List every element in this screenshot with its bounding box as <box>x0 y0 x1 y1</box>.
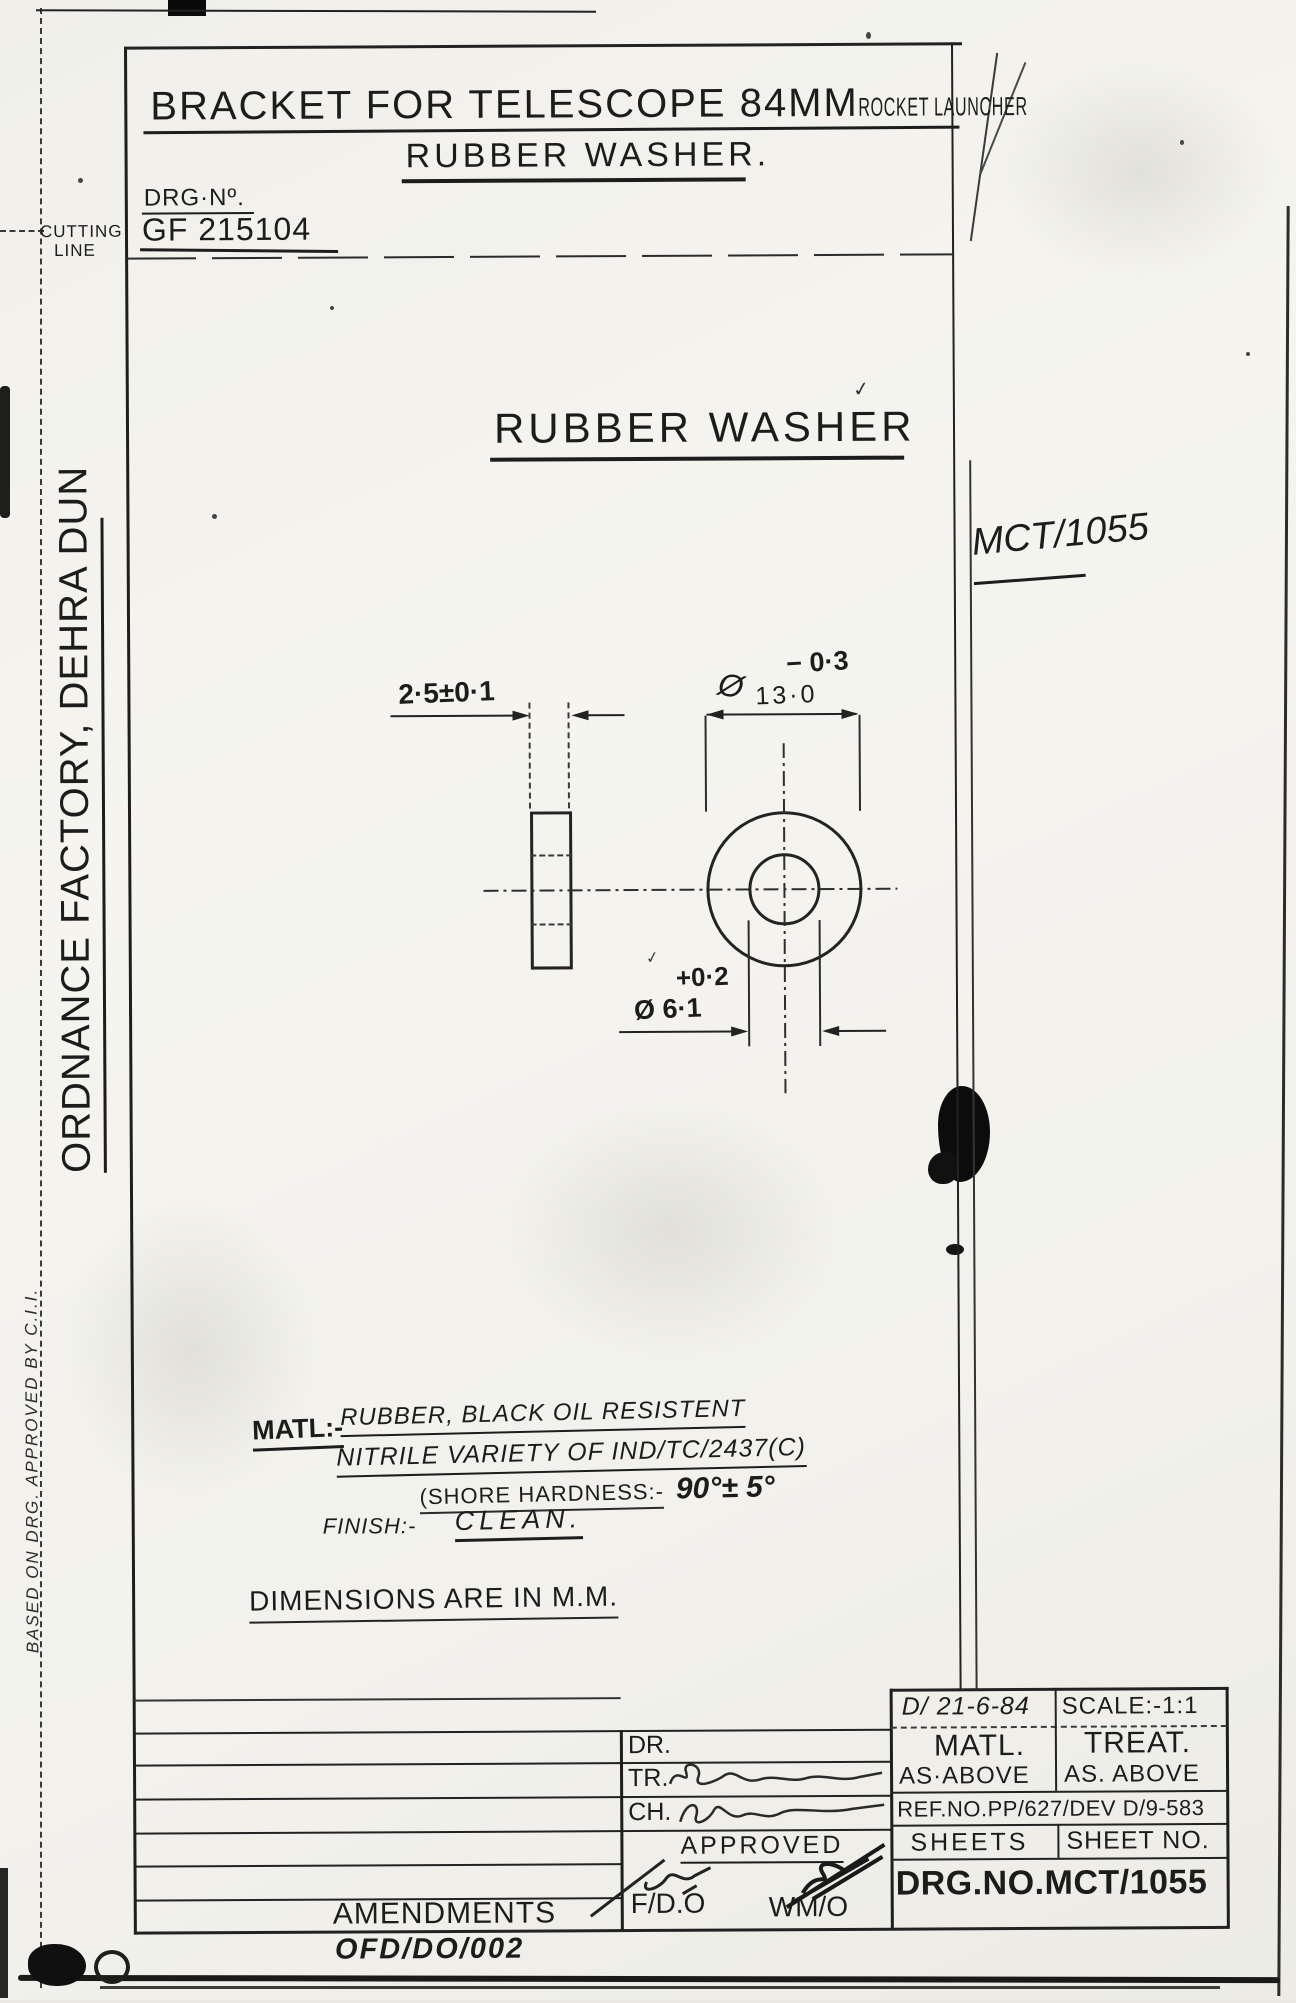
hidden-hole-line-bottom <box>531 923 573 925</box>
dim-inner-tol-text: +0·2 <box>675 961 729 994</box>
dim-thickness-text: 2·5±0·1 <box>398 675 496 711</box>
main-title-part1: BRACKET FOR TELESCOPE 84MM <box>150 81 859 130</box>
ref-code-underline <box>974 574 1086 585</box>
tr-label: TR. <box>628 1764 668 1793</box>
amend-row-line <box>134 1697 621 1702</box>
wmo-label: WM/O <box>769 1891 848 1923</box>
tblock-col-line <box>1055 1688 1058 1791</box>
frame-bottom-line <box>134 1926 1230 1935</box>
units-note: DIMENSIONS ARE IN M.M. <box>249 1581 618 1624</box>
dim-outer-tol-text: − 0·3 <box>785 645 849 680</box>
treat-cell-label: TREAT. <box>1084 1726 1191 1761</box>
dim-inner-dia-text: Ø 6·1 <box>633 993 702 1027</box>
sheet-no-label: SHEET NO. <box>1066 1826 1209 1856</box>
cutting-line-label: CUTTING LINE <box>40 222 123 260</box>
dim-ext-line <box>859 715 862 811</box>
dim-outer-line <box>707 713 857 716</box>
main-title-part2: ROCKET LAUNCHER <box>859 91 1028 123</box>
frame-left-line <box>124 47 137 1935</box>
dr-label: DR. <box>628 1731 671 1760</box>
ref-code: MCT/1055 <box>970 506 1151 565</box>
sheets-label: SHEETS <box>910 1828 1028 1858</box>
main-title: BRACKET FOR TELESCOPE 84MM ROCKET LAUNCH… <box>150 79 1132 129</box>
shore-value: 90°± 5° <box>676 1470 776 1506</box>
amend-row-line <box>134 1729 891 1735</box>
dim-arrow-right <box>731 1026 748 1036</box>
amend-row-line <box>135 1863 622 1868</box>
check-mark: ✓ <box>851 376 871 403</box>
dim-arrow-left <box>706 710 723 720</box>
drg-no-cell: DRG.NO.MCT/1055 <box>896 1863 1208 1904</box>
scale-value: SCALE:-1:1 <box>1062 1692 1199 1721</box>
dim-ext-line <box>567 702 570 808</box>
cutting-line-label-1: CUTTING <box>40 222 123 241</box>
treat-cell-value: AS. ABOVE <box>1064 1760 1200 1789</box>
dim-arrow-right <box>512 711 529 721</box>
cutting-line-label-2: LINE <box>54 241 123 260</box>
tblock-row-line <box>891 1790 1227 1794</box>
fdo-label: F/D.O <box>631 1888 706 1920</box>
tblock-right-edge <box>1226 1687 1230 1927</box>
matl-cell-label: MATL. <box>934 1729 1025 1763</box>
subtitle: RUBBER WASHER. <box>405 135 770 176</box>
frame-top-line <box>124 42 962 49</box>
ch-signature <box>672 1791 892 1832</box>
ref-no-value: REF.NO.PP/627/DEV D/9-583 <box>897 1795 1204 1823</box>
dim-arrow-right <box>841 709 858 719</box>
header-separator-line <box>126 253 954 259</box>
dim-outer-dia-text: 13·0 <box>755 680 818 711</box>
based-on-vertical-note: BASED ON DRG. APPROVED BY C.I.I. <box>21 1271 43 1653</box>
drg-no-value: GF 215104 <box>142 211 311 249</box>
dim-thickness-line-right <box>587 714 625 716</box>
matl-line1: RUBBER, BLACK OIL RESISTENT <box>340 1395 746 1437</box>
scanned-paper: CUTTING LINE ORDNANCE FACTORY, DEHRA DUN… <box>0 0 1296 2000</box>
form-no: OFD/DO/002 <box>335 1933 524 1967</box>
frame-right-line <box>951 42 962 1690</box>
tblock-right-top <box>891 1687 1229 1692</box>
finish-value: CLEAN. <box>454 1503 582 1542</box>
view-title: RUBBER WASHER <box>494 403 916 453</box>
drg-no-label: DRG·Nº. <box>144 184 245 213</box>
dim-inner-line-left <box>619 1031 733 1034</box>
factory-vertical-label: ORDNANCE FACTORY, DEHRA DUN <box>51 518 106 1173</box>
amendments-label: AMENDMENTS <box>333 1896 557 1931</box>
tr-signature <box>664 1757 889 1794</box>
dim-ext-line <box>528 703 531 809</box>
dim-inner-line-right <box>838 1030 886 1032</box>
subtitle-underline <box>402 177 746 183</box>
dim-outer-phi: Ø <box>715 665 747 706</box>
frame-right-line2 <box>969 460 977 1690</box>
check-mark: ✓ <box>644 947 661 969</box>
tblock-col-line <box>1057 1824 1059 1858</box>
date-value: D/ 21-6-84 <box>902 1692 1030 1722</box>
ch-label: CH. <box>628 1798 671 1827</box>
finish-label: FINISH:- <box>323 1513 417 1539</box>
matl-label: MATL:- <box>252 1412 344 1452</box>
hidden-hole-line-top <box>530 854 572 856</box>
dim-ext-line <box>705 716 708 812</box>
sheet-content: CUTTING LINE ORDNANCE FACTORY, DEHRA DUN… <box>0 0 1296 2003</box>
dim-thickness-line-left <box>391 715 515 718</box>
dim-arrow-left <box>822 1026 839 1036</box>
drg-no-value-underline <box>140 248 338 253</box>
matl-cell-value: AS·ABOVE <box>899 1762 1030 1791</box>
view-title-underline <box>490 456 904 462</box>
